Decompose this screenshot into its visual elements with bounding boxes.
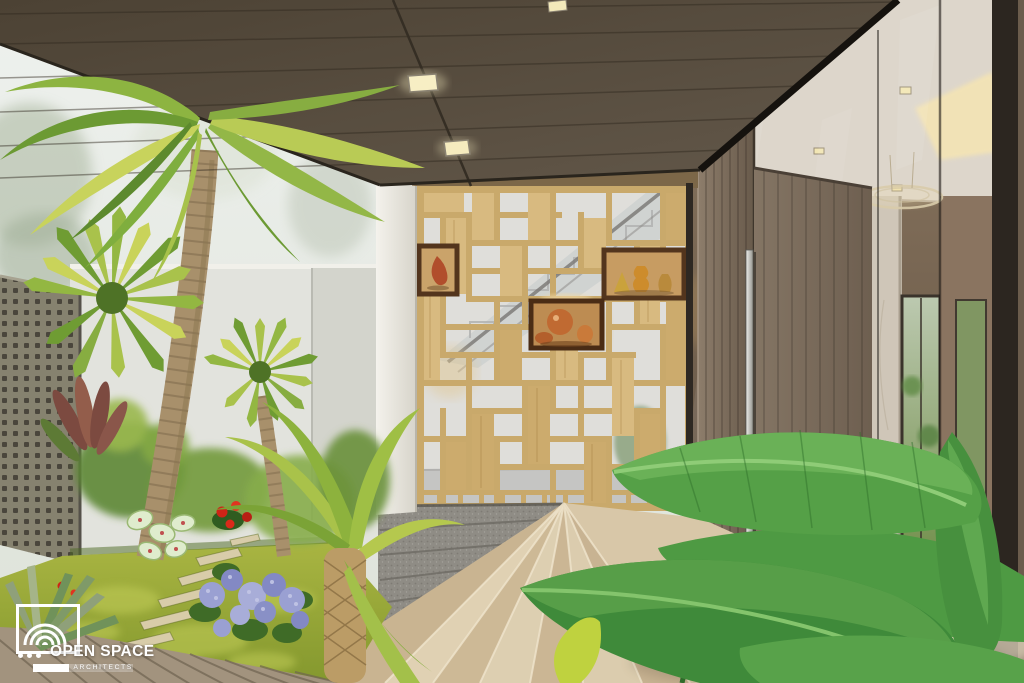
scene-render: [0, 0, 1024, 683]
display-box-center: [531, 294, 602, 348]
display-box-right: [604, 250, 684, 298]
bottle-vase-icon: [658, 274, 671, 292]
logo-bar-solid: [33, 664, 69, 672]
brand-name: OPEN SPACE: [50, 643, 155, 661]
architectural-render: OPEN SPACE ARCHITECTS: [0, 0, 1024, 683]
gourd-vase-icon: [633, 266, 649, 292]
display-box-left: [419, 246, 457, 294]
logo-dots: [18, 653, 41, 658]
logo-bar: ARCHITECTS: [33, 664, 133, 672]
logo-arcs-icon: [19, 607, 71, 645]
brand-sub: ARCHITECTS: [69, 664, 133, 672]
copper-vase-icon: [547, 309, 573, 335]
open-space-logo: OPEN SPACE ARCHITECTS: [14, 600, 174, 678]
